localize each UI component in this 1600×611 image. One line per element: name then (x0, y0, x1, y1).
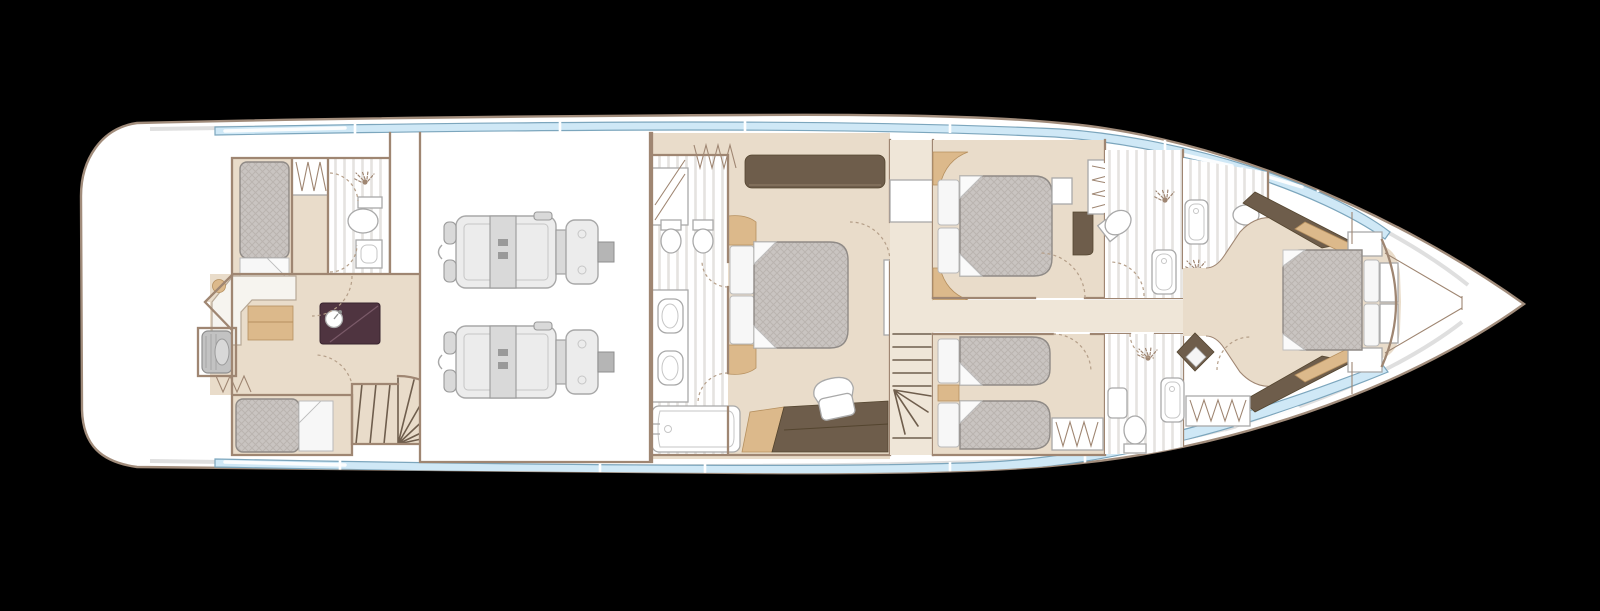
landing-closet (890, 180, 933, 222)
main-stairs (890, 140, 933, 455)
crew-wardrobe-icon (292, 158, 328, 195)
twin-bed-2 (938, 401, 1050, 449)
toilet-icon (661, 229, 681, 253)
twin-wardrobe (1052, 418, 1103, 450)
basin-icon (356, 240, 382, 268)
bidet-icon (693, 229, 713, 253)
vip-wardrobe (1186, 396, 1250, 426)
master-sofa (745, 155, 885, 188)
stool-icon (213, 280, 226, 293)
crew-berth-starboard (236, 399, 333, 452)
tub-icon (1152, 250, 1176, 294)
nightstand (938, 385, 959, 401)
engine-port (439, 212, 615, 288)
tub-icon (1185, 200, 1208, 244)
galley-counter (320, 303, 380, 344)
toilet-icon (1124, 416, 1146, 444)
bathtub-icon (652, 406, 740, 452)
master-stateroom (652, 133, 891, 462)
engine-room (420, 133, 650, 462)
guest-desk (1073, 212, 1093, 255)
bedside-table (1052, 178, 1072, 204)
twin-bed-1 (938, 337, 1050, 385)
engine-starboard (439, 322, 615, 398)
floor-plan-svg (0, 0, 1600, 611)
washing-machine (198, 328, 236, 376)
tub-icon (1161, 378, 1184, 422)
basin-icon (1108, 388, 1127, 418)
crew-mess-table (248, 306, 293, 340)
corridor (933, 300, 1183, 332)
yacht-deck-plan (0, 0, 1600, 611)
toilet-icon (348, 209, 378, 233)
twin-ensuite (1105, 334, 1184, 454)
